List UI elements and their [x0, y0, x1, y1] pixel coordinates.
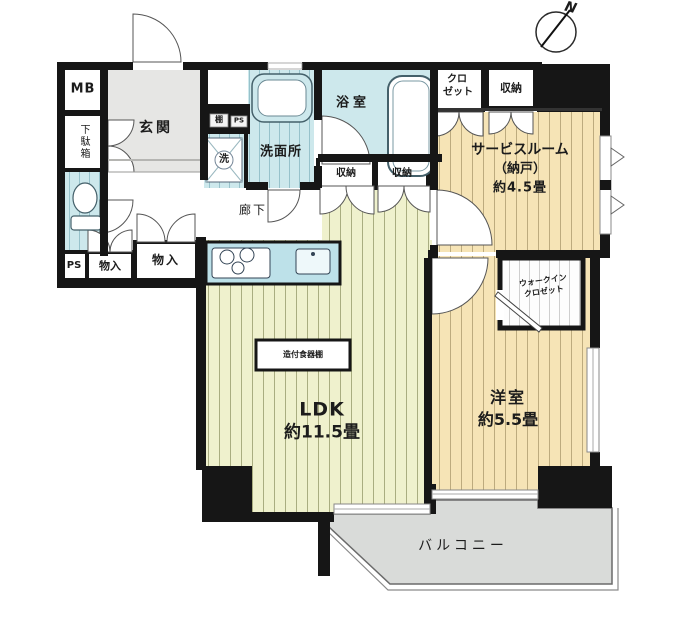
label-closet-1: クロ — [447, 75, 467, 85]
label-shelf: 棚 — [215, 116, 223, 124]
label-storage-top: 収納 — [500, 83, 522, 94]
storage-mid-door-arc — [137, 214, 165, 242]
compass-icon — [536, 10, 576, 52]
washroom-door-arc — [268, 190, 300, 222]
label-service-3: 約4.5畳 — [493, 182, 547, 195]
toilet-tank-icon — [71, 216, 101, 230]
label-bathroom: 浴室 — [336, 97, 370, 110]
label-western-2: 約5.5畳 — [478, 412, 538, 428]
casement-icon — [611, 196, 624, 214]
label-closet-2: ゼット — [443, 88, 473, 98]
label-balcony: バルコニー — [418, 539, 508, 553]
label-washroom: 洗面所 — [260, 146, 302, 159]
toilet-icon — [73, 183, 97, 213]
window-top — [268, 63, 302, 69]
label-storage-mid: 物入 — [152, 254, 180, 266]
floor-plan: MB 下駄箱 玄関 棚 PS 洗 洗面所 浴室 クロ ゼット 収納 サービスルー… — [0, 0, 689, 643]
label-washer: 洗 — [219, 155, 229, 165]
casement-icon — [611, 148, 624, 166]
label-corridor: 廊下 — [239, 204, 267, 216]
label-ps-upper: PS — [234, 118, 244, 125]
label-storage-left: 物入 — [99, 261, 121, 272]
label-ldk-2: 約11.5畳 — [284, 425, 360, 442]
label-shoe-cabinet: 下駄箱 — [78, 124, 88, 160]
label-storage-b: 収納 — [392, 169, 412, 179]
label-ps-lower: PS — [67, 261, 82, 271]
storage-mid-door-arc — [167, 214, 195, 242]
storage-left-door-arc — [110, 230, 132, 252]
entrance-door-arc — [133, 14, 181, 62]
label-western-1: 洋室 — [490, 390, 526, 406]
label-entrance: 玄関 — [139, 121, 173, 135]
label-storage-a: 収納 — [336, 169, 356, 179]
label-mb: MB — [71, 83, 96, 96]
label-service-2: （納戸） — [494, 163, 546, 176]
label-cupboard: 造付食器棚 — [283, 351, 323, 359]
label-service-1: サービスルーム — [471, 143, 569, 157]
label-ldk-1: LDK — [299, 401, 345, 420]
